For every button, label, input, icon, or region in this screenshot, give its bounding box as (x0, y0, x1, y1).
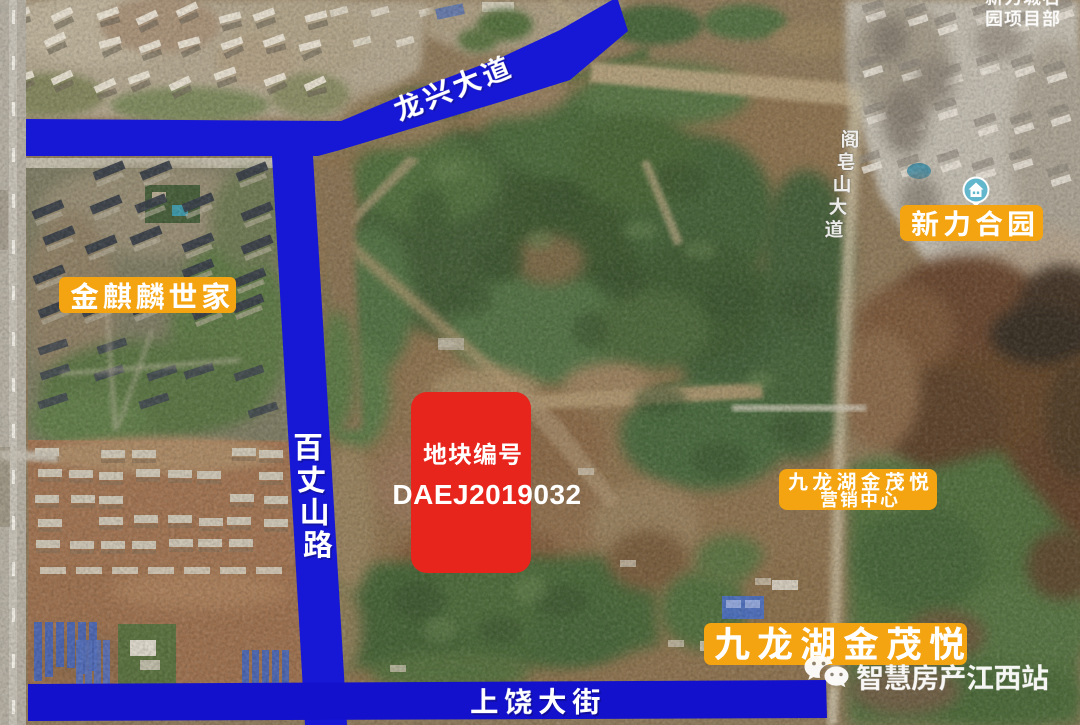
svg-text:DAEJ2019032: DAEJ2019032 (392, 479, 581, 510)
